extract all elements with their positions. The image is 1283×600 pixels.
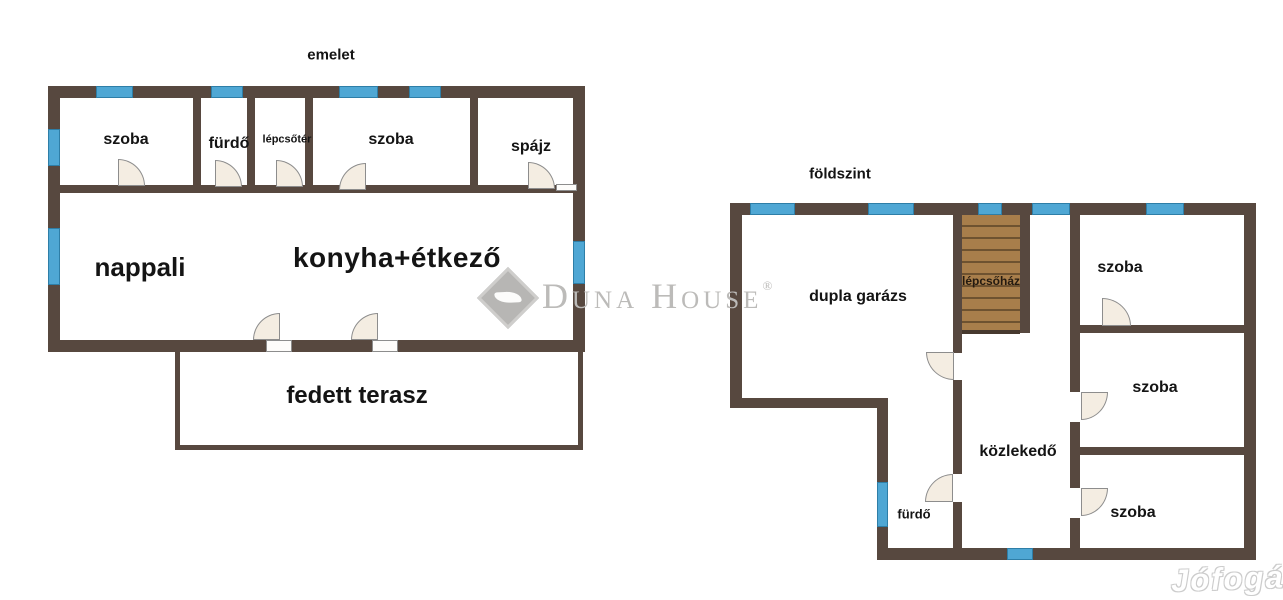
wall-segment [1070,447,1244,455]
door-swing-arc [1081,488,1108,516]
window-marker [1007,548,1033,560]
door-swing-arc [926,352,954,380]
window-marker [868,203,914,215]
window-marker [877,482,888,527]
room-label-szoba: szoba [1097,260,1142,276]
jofogas-watermark: Jófogás [1170,559,1283,600]
room-label-kozlekedo: közlekedő [979,444,1056,460]
window-marker [1032,203,1070,215]
door-swing-arc [1081,392,1108,420]
wall-segment [953,215,962,353]
wall-segment [1070,215,1080,392]
wall-segment [877,398,888,560]
wall-segment [1020,215,1030,333]
wall-segment [1070,518,1080,548]
room-label-dupla-garazs: dupla garázs [809,289,907,305]
floor-plan-canvas: emelet szoba [0,0,1283,600]
wall-segment [953,380,962,474]
wall-segment [1070,325,1244,333]
dunahouse-logo-icon [477,267,539,329]
room-label-szoba: szoba [1110,505,1155,521]
wall-segment [877,548,1256,560]
dunahouse-watermark-text: Duna House® [542,271,772,321]
wall-segment [1070,422,1080,488]
floor-title-foldszint: földszint [809,167,871,182]
room-label-szoba: szoba [1132,380,1177,396]
swoosh-icon [494,291,522,303]
room-label-furdo: fürdő [897,508,930,521]
door-swing-arc [1102,298,1131,326]
wall-segment [730,398,888,408]
dunahouse-watermark: Duna House® [486,271,772,321]
wall-segment [1244,203,1256,560]
registered-mark: ® [762,278,772,293]
door-swing-arc [925,474,953,502]
wall-segment [953,502,962,548]
window-marker [750,203,795,215]
window-marker [978,203,1002,215]
window-marker [1146,203,1184,215]
room-label-lepcsohaz: lépcsőház [962,275,1020,287]
